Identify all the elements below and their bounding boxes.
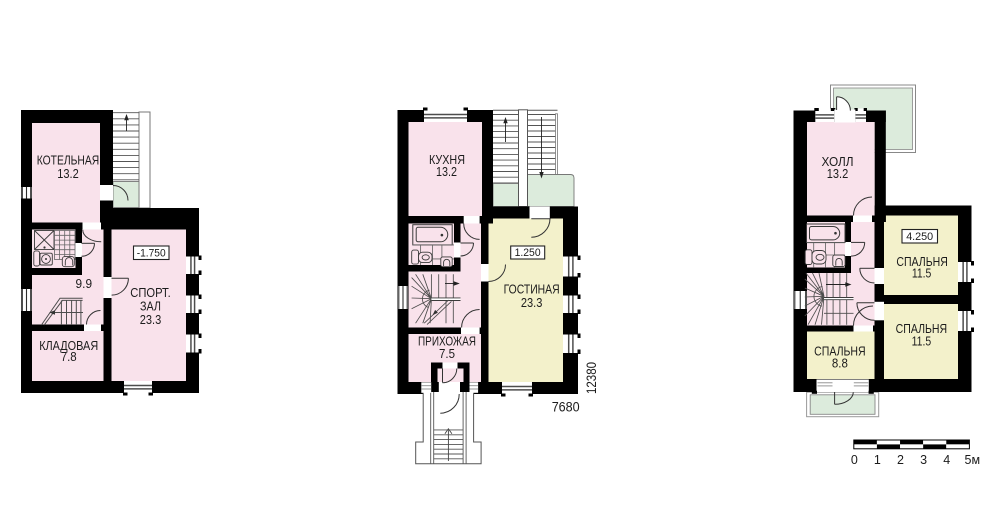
svg-text:3: 3 [920, 453, 927, 467]
svg-text:8.8: 8.8 [832, 356, 848, 371]
svg-text:13.2: 13.2 [57, 166, 79, 181]
svg-text:2: 2 [897, 453, 904, 467]
svg-text:7.5: 7.5 [439, 346, 455, 361]
svg-text:5м: 5м [965, 453, 981, 467]
svg-text:11.5: 11.5 [912, 266, 932, 281]
svg-text:1: 1 [874, 453, 881, 467]
svg-text:1.250: 1.250 [515, 247, 541, 259]
svg-text:13.2: 13.2 [827, 166, 849, 181]
svg-text:0: 0 [851, 453, 858, 467]
svg-text:9.9: 9.9 [76, 276, 93, 291]
svg-text:7.8: 7.8 [61, 349, 77, 364]
svg-text:4.250: 4.250 [906, 231, 933, 243]
svg-text:23.3: 23.3 [521, 295, 543, 310]
svg-text:-1.750: -1.750 [137, 247, 166, 259]
svg-text:7680: 7680 [552, 400, 580, 415]
svg-text:4: 4 [943, 453, 950, 467]
svg-text:11.5: 11.5 [912, 334, 932, 349]
svg-text:23.3: 23.3 [140, 312, 162, 327]
svg-text:13.2: 13.2 [436, 164, 457, 179]
svg-text:12380: 12380 [584, 362, 599, 394]
